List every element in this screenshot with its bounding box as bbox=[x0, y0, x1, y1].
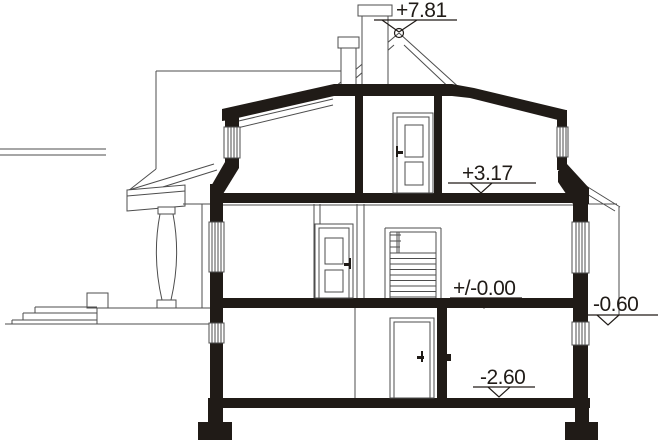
roof-right-slope bbox=[452, 84, 566, 122]
level-label-grade-right: -0.60 bbox=[593, 293, 638, 316]
level-marker-attic-floor: +3.17 bbox=[448, 162, 536, 193]
level-marker-grade-right: -0.60 bbox=[588, 293, 658, 325]
porch-column bbox=[156, 207, 176, 308]
attic-partition-right bbox=[434, 96, 442, 193]
first-floor-slab bbox=[210, 193, 588, 203]
attic-partition-left bbox=[355, 96, 363, 193]
window-right-basement bbox=[572, 322, 589, 345]
right-footing bbox=[565, 422, 598, 440]
entry-steps bbox=[12, 307, 97, 324]
attic-door bbox=[393, 113, 433, 193]
basement-jamb-wall bbox=[437, 308, 447, 398]
section-drawing: +7.81 +3.17 +/-0.00 -0.60 -2.60 bbox=[0, 0, 659, 445]
level-label-attic-floor: +3.17 bbox=[462, 162, 513, 185]
window-left-ground bbox=[209, 222, 224, 272]
background-left-wing bbox=[0, 71, 345, 191]
window-left-knee bbox=[224, 127, 240, 158]
ground-floor-slab bbox=[210, 298, 588, 308]
vent-chimney bbox=[338, 37, 359, 86]
step-pedestal bbox=[87, 293, 108, 308]
window-right-knee bbox=[557, 127, 568, 157]
basement-floor-slab bbox=[208, 398, 590, 408]
level-label-basement: -2.60 bbox=[480, 366, 525, 389]
level-label-ridge: +7.81 bbox=[396, 0, 447, 22]
ground-floor-door bbox=[315, 224, 353, 298]
section-drawing-canvas: +7.81 +3.17 +/-0.00 -0.60 -2.60 bbox=[0, 0, 659, 445]
porch-eave-box bbox=[127, 185, 185, 211]
window-left-basement bbox=[209, 323, 224, 343]
porch bbox=[5, 164, 217, 324]
porch-platform bbox=[97, 308, 213, 324]
attic-ceiling-slab bbox=[334, 84, 452, 96]
level-label-ground-floor: +/-0.00 bbox=[453, 277, 515, 300]
level-marker-basement: -2.60 bbox=[473, 366, 535, 397]
window-right-ground bbox=[572, 222, 589, 273]
chimney bbox=[358, 5, 392, 86]
left-footing bbox=[198, 422, 232, 440]
staircase bbox=[385, 228, 441, 298]
